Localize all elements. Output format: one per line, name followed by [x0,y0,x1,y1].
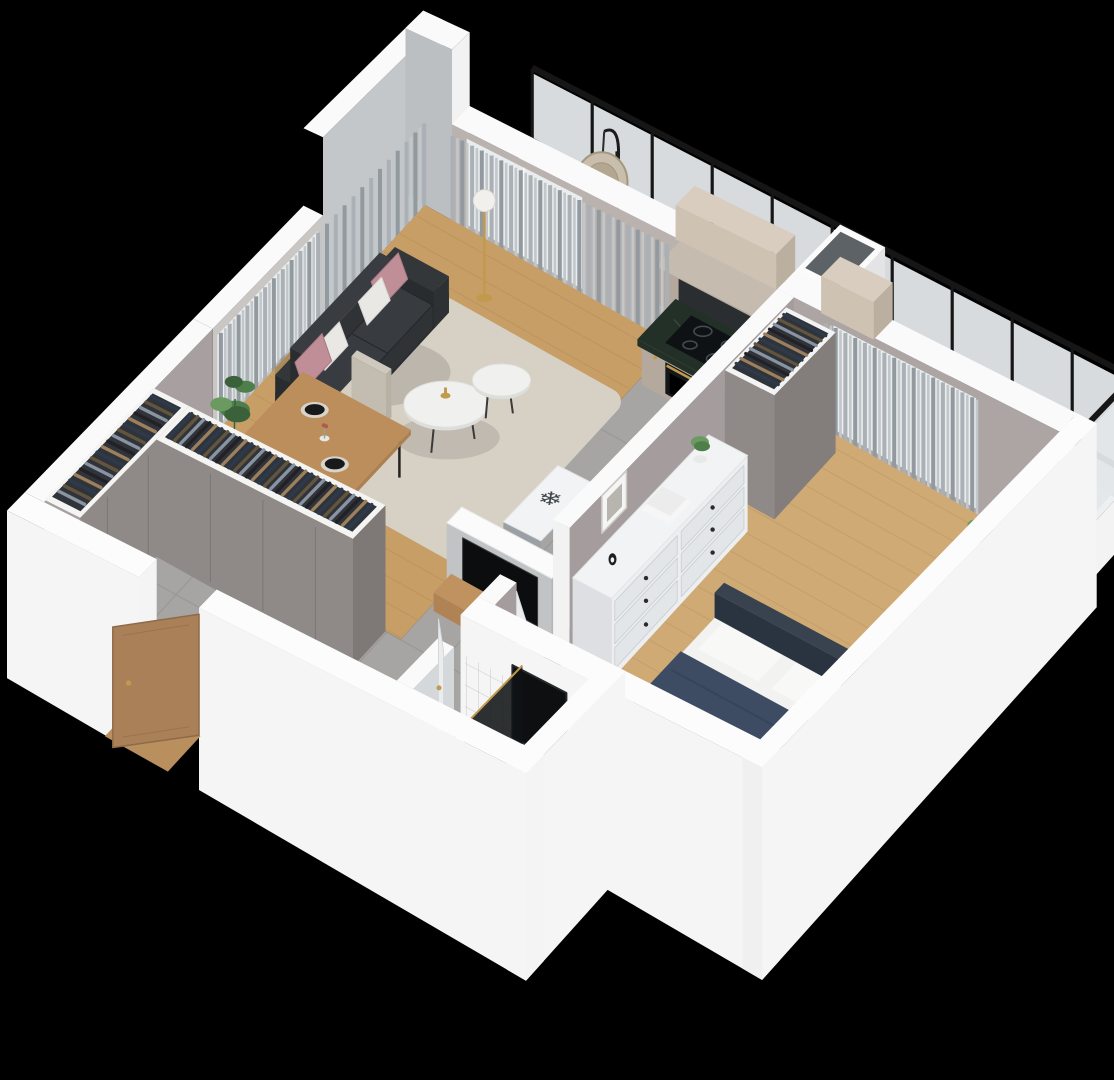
scene-shape [406,28,453,220]
scene-shape [210,397,232,411]
scene-shape [611,557,615,562]
entry-door [113,614,199,747]
scene-shape [126,680,131,685]
scene-shape [473,364,531,396]
scene-shape [710,550,714,554]
scene-shape [325,458,345,469]
floorplan-viewport[interactable]: ❄ [0,0,1114,1080]
scene-shape [644,622,648,626]
scene-shape [743,758,763,981]
freezer-snowflake-icon: ❄ [536,487,565,510]
scene-shape [225,376,243,388]
scene-shape [693,455,707,463]
scene-shape [710,505,714,509]
scene-shape [324,424,328,428]
scene-shape [644,576,648,580]
scene-shape [553,520,570,656]
apartment-3d-render: ❄ [0,0,1114,1080]
scene-shape [653,356,657,360]
scene-shape [526,755,544,981]
scene-shape [603,131,604,154]
scene-shape [644,599,648,603]
scene-shape [437,685,442,690]
scene-shape [473,190,495,212]
scene-shape [386,369,391,423]
scene-shape [710,527,714,531]
scene-shape [305,404,325,415]
scene-shape [694,441,710,451]
